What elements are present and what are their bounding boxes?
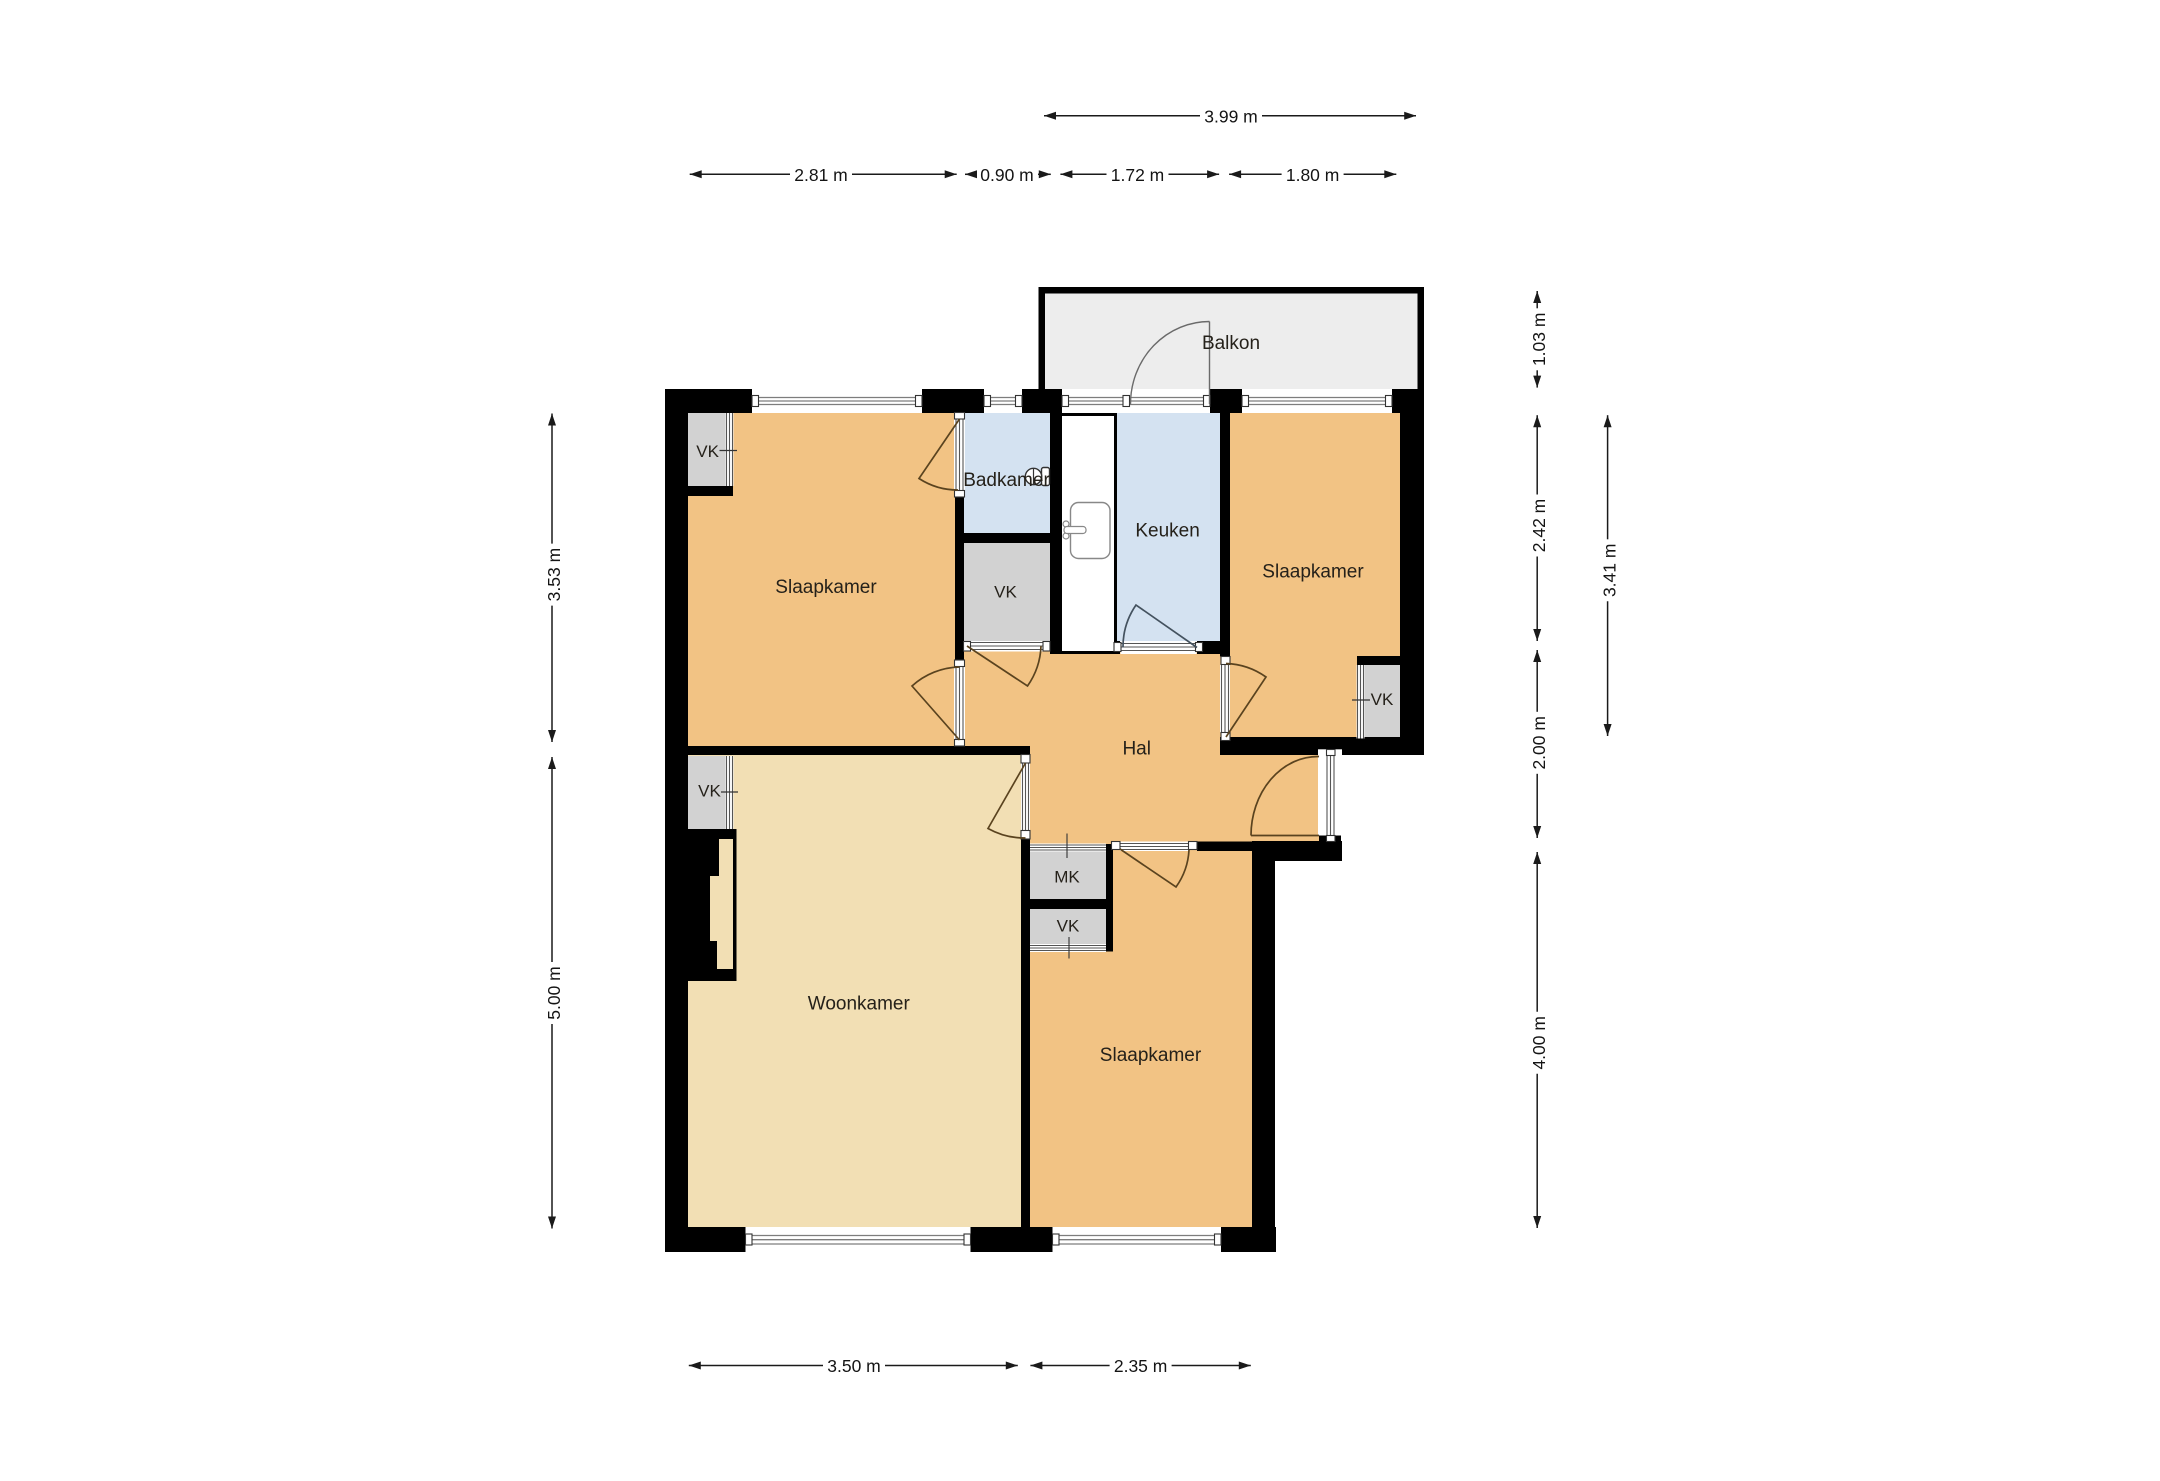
svg-text:3.41 m: 3.41 m <box>1600 544 1620 598</box>
svg-text:2.00 m: 2.00 m <box>1529 716 1549 770</box>
svg-text:2.81 m: 2.81 m <box>794 165 848 185</box>
svg-text:3.99 m: 3.99 m <box>1204 106 1258 126</box>
svg-text:VK: VK <box>1371 690 1394 709</box>
svg-text:Woonkamer: Woonkamer <box>808 993 911 1014</box>
svg-text:MK: MK <box>1054 868 1080 887</box>
svg-text:5.00 m: 5.00 m <box>544 966 564 1020</box>
svg-text:VK: VK <box>994 583 1017 602</box>
svg-text:Badkamer: Badkamer <box>963 470 1050 491</box>
svg-text:2.35 m: 2.35 m <box>1114 1356 1168 1376</box>
svg-text:2.42 m: 2.42 m <box>1529 499 1549 553</box>
svg-text:4.00 m: 4.00 m <box>1529 1016 1549 1070</box>
svg-text:1.72 m: 1.72 m <box>1111 165 1165 185</box>
svg-text:Balkon: Balkon <box>1202 333 1260 354</box>
svg-text:Slaapkamer: Slaapkamer <box>1262 562 1364 583</box>
svg-text:Keuken: Keuken <box>1135 521 1199 542</box>
svg-text:1.80 m: 1.80 m <box>1286 165 1340 185</box>
svg-text:0.90 m: 0.90 m <box>980 165 1034 185</box>
svg-text:1.03 m: 1.03 m <box>1529 313 1549 367</box>
svg-text:Slaapkamer: Slaapkamer <box>1100 1045 1202 1066</box>
svg-text:VK: VK <box>696 442 719 461</box>
svg-text:VK: VK <box>698 781 721 800</box>
svg-text:3.50 m: 3.50 m <box>827 1356 881 1376</box>
svg-text:3.53 m: 3.53 m <box>544 548 564 602</box>
svg-text:Slaapkamer: Slaapkamer <box>775 577 877 598</box>
svg-text:Hal: Hal <box>1122 739 1151 760</box>
svg-text:VK: VK <box>1057 917 1080 936</box>
